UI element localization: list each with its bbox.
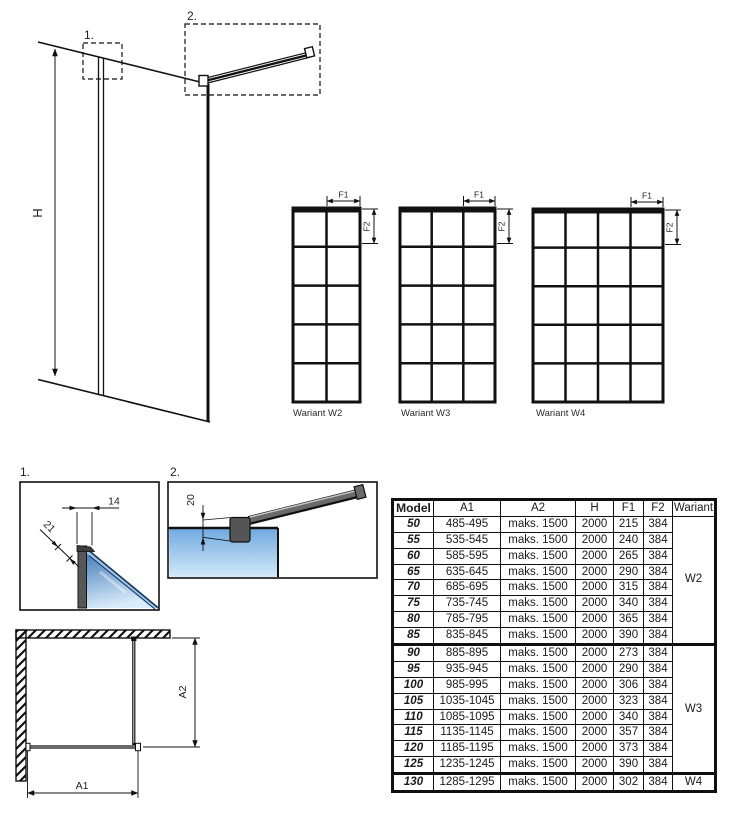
cell-a2: maks. 1500 <box>501 757 576 774</box>
cell-model: 80 <box>393 612 434 628</box>
cell-h: 2000 <box>576 661 614 677</box>
col-header-f2: F2 <box>644 500 673 517</box>
table-row: 100985-995maks. 15002000306384 <box>393 677 716 693</box>
dim-20-label: 20 <box>185 494 197 506</box>
cell-f1: 273 <box>614 645 644 662</box>
cell-model: 75 <box>393 596 434 612</box>
f2-label: F2 <box>497 221 507 231</box>
cell-a2: maks. 1500 <box>501 774 576 792</box>
col-header-f1: F1 <box>614 500 644 517</box>
cell-f2: 384 <box>644 596 673 612</box>
table-row: 1301285-1295maks. 15002000302384W4 <box>393 774 716 792</box>
cell-a2: maks. 1500 <box>501 661 576 677</box>
cell-h: 2000 <box>576 596 614 612</box>
cell-a1: 535-545 <box>434 532 501 548</box>
f1-dimension-w3: F1 <box>464 190 496 207</box>
variant-w3-label: Wariant W3 <box>401 408 450 419</box>
f2-label: F2 <box>665 222 675 232</box>
table-row: 1201185-1195maks. 15002000373384 <box>393 741 716 757</box>
cell-model: 125 <box>393 757 434 774</box>
col-header-a1: A1 <box>434 500 501 517</box>
cell-model: 60 <box>393 548 434 564</box>
table-row: 1101085-1095maks. 15002000340384 <box>393 709 716 725</box>
cell-f2: 384 <box>644 612 673 628</box>
a2-label: A2 <box>177 685 189 698</box>
cell-model: 105 <box>393 693 434 709</box>
cell-a2: maks. 1500 <box>501 532 576 548</box>
cell-h: 2000 <box>576 612 614 628</box>
cell-f1: 390 <box>614 628 644 645</box>
cell-a2: maks. 1500 <box>501 677 576 693</box>
f1-dimension-w2: F1 <box>327 190 360 207</box>
left-wall <box>16 630 26 781</box>
cell-a1: 985-995 <box>434 677 501 693</box>
cell-f1: 240 <box>614 532 644 548</box>
cell-h: 2000 <box>576 548 614 564</box>
cell-model: 65 <box>393 564 434 580</box>
cell-h: 2000 <box>576 725 614 741</box>
col-header-h: H <box>576 500 614 517</box>
cell-model: 115 <box>393 725 434 741</box>
col-header-wariant: Wariant <box>673 500 716 517</box>
detail-1-label: 1. <box>20 465 30 479</box>
f1-label: F1 <box>642 191 652 201</box>
cell-f1: 390 <box>614 757 644 774</box>
bar-wall-cap <box>305 47 315 58</box>
plan-view-drawing: A1 A2 <box>10 620 222 839</box>
detail-2-drawing: 2. 20 <box>165 460 380 585</box>
cell-f2: 384 <box>644 709 673 725</box>
dim-21: 21 <box>40 519 79 567</box>
col-header-model: Model <box>393 500 434 517</box>
cell-a1: 1135-1145 <box>434 725 501 741</box>
cell-a2: maks. 1500 <box>501 564 576 580</box>
cell-a2: maks. 1500 <box>501 580 576 596</box>
cell-f2: 384 <box>644 774 673 792</box>
cell-f2: 384 <box>644 757 673 774</box>
cell-f1: 215 <box>614 516 644 532</box>
table-row: 75735-745maks. 15002000340384 <box>393 596 716 612</box>
wall-profile <box>99 57 104 396</box>
cell-f1: 357 <box>614 725 644 741</box>
table-row: 90885-895maks. 15002000273384W3 <box>393 645 716 662</box>
support-bar <box>199 47 315 86</box>
spec-table-body: 50485-495maks. 15002000215384W255535-545… <box>393 516 716 791</box>
clamp-block <box>230 518 250 543</box>
f1-label: F1 <box>339 190 349 200</box>
cell-a1: 1185-1195 <box>434 741 501 757</box>
cell-f2: 384 <box>644 516 673 532</box>
a2-dimension: A2 <box>143 638 200 747</box>
detail-callout-1: 1. <box>83 28 122 79</box>
cell-model: 130 <box>393 774 434 792</box>
cell-h: 2000 <box>576 741 614 757</box>
variant-w3: F1 F2 Wariant W3 <box>399 190 514 420</box>
cell-a1: 885-895 <box>434 645 501 662</box>
table-row: 70685-695maks. 15002000315384 <box>393 580 716 596</box>
f2-dimension-w2: F2 <box>362 209 379 244</box>
detail-1-drawing: 1. 14 21 <box>10 460 170 620</box>
cell-f1: 302 <box>614 774 644 792</box>
cell-model: 90 <box>393 645 434 662</box>
cell-h: 2000 <box>576 677 614 693</box>
page: { "perspective": { "h_label": "H", "deta… <box>0 0 735 839</box>
top-wall <box>16 630 170 638</box>
cell-f2: 384 <box>644 725 673 741</box>
cell-model: 95 <box>393 661 434 677</box>
h-dimension: H <box>30 49 55 376</box>
table-row: 1251235-1245maks. 15002000390384 <box>393 757 716 774</box>
cell-a2: maks. 1500 <box>501 725 576 741</box>
cell-model: 50 <box>393 516 434 532</box>
cell-a1: 485-495 <box>434 516 501 532</box>
cell-model: 120 <box>393 741 434 757</box>
cell-h: 2000 <box>576 532 614 548</box>
cell-h: 2000 <box>576 516 614 532</box>
cell-f2: 384 <box>644 741 673 757</box>
cell-model: 70 <box>393 580 434 596</box>
cell-h: 2000 <box>576 564 614 580</box>
cell-a1: 1285-1295 <box>434 774 501 792</box>
cell-f2: 384 <box>644 628 673 645</box>
cell-f1: 265 <box>614 548 644 564</box>
bar-glass-clamp <box>199 76 208 87</box>
cell-a1: 1035-1045 <box>434 693 501 709</box>
cell-a2: maks. 1500 <box>501 548 576 564</box>
cell-h: 2000 <box>576 757 614 774</box>
cell-f1: 340 <box>614 596 644 612</box>
cell-f2: 384 <box>644 532 673 548</box>
cell-wariant: W3 <box>673 645 716 774</box>
cell-a1: 785-795 <box>434 612 501 628</box>
variant-w4: F1 F2 Wariant W4 <box>532 191 682 420</box>
spec-table: Model A1 A2 H F1 F2 Wariant 50485-495mak… <box>391 498 717 793</box>
table-row: 95935-945maks. 15002000290384 <box>393 661 716 677</box>
table-header-row: Model A1 A2 H F1 F2 Wariant <box>393 500 716 517</box>
variant-grids: F1 F2 Wariant W2 F1 F2 War <box>280 185 735 430</box>
detail-callout-1-label: 1. <box>84 28 94 42</box>
cell-a2: maks. 1500 <box>501 645 576 662</box>
cell-a2: maks. 1500 <box>501 596 576 612</box>
cell-a1: 735-745 <box>434 596 501 612</box>
table-row: 50485-495maks. 15002000215384W2 <box>393 516 716 532</box>
cell-f1: 290 <box>614 564 644 580</box>
bar-clamp-section <box>230 485 366 542</box>
cell-f2: 384 <box>644 645 673 662</box>
cell-f1: 365 <box>614 612 644 628</box>
cell-f1: 340 <box>614 709 644 725</box>
detail-2-label: 2. <box>170 465 180 479</box>
cell-a1: 1235-1245 <box>434 757 501 774</box>
a1-dimension: A1 <box>28 751 139 798</box>
variant-w4-label: Wariant W4 <box>536 408 585 419</box>
cell-model: 85 <box>393 628 434 645</box>
h-dimension-label: H <box>30 208 45 217</box>
cell-f1: 306 <box>614 677 644 693</box>
cell-a1: 935-945 <box>434 661 501 677</box>
cell-a2: maks. 1500 <box>501 693 576 709</box>
f1-label: F1 <box>474 190 484 200</box>
walls <box>16 630 170 781</box>
variant-w2-label: Wariant W2 <box>293 408 342 419</box>
f1-dimension-w4: F1 <box>631 191 663 208</box>
cell-f1: 315 <box>614 580 644 596</box>
cell-a1: 1085-1095 <box>434 709 501 725</box>
cell-wariant: W4 <box>673 774 716 792</box>
cell-model: 100 <box>393 677 434 693</box>
cell-h: 2000 <box>576 774 614 792</box>
f2-label: F2 <box>362 221 372 231</box>
support-bar-plan <box>131 637 136 746</box>
cell-a2: maks. 1500 <box>501 612 576 628</box>
a1-label: A1 <box>76 780 89 792</box>
cell-f2: 384 <box>644 661 673 677</box>
glass-panel-plan <box>26 743 141 750</box>
table-row: 1051035-1045maks. 15002000323384 <box>393 693 716 709</box>
cell-a1: 585-595 <box>434 548 501 564</box>
cell-h: 2000 <box>576 628 614 645</box>
cell-f2: 384 <box>644 564 673 580</box>
table-row: 85835-845maks. 15002000390384 <box>393 628 716 645</box>
cell-h: 2000 <box>576 709 614 725</box>
variant-w2: F1 F2 Wariant W2 <box>292 190 379 420</box>
dim-14-label: 14 <box>108 496 120 508</box>
cell-f2: 384 <box>644 677 673 693</box>
cell-f1: 323 <box>614 693 644 709</box>
cell-a1: 685-695 <box>434 580 501 596</box>
table-row: 55535-545maks. 15002000240384 <box>393 532 716 548</box>
cell-a1: 635-645 <box>434 564 501 580</box>
col-header-a2: A2 <box>501 500 576 517</box>
cell-a2: maks. 1500 <box>501 628 576 645</box>
table-row: 65635-645maks. 15002000290384 <box>393 564 716 580</box>
cell-f1: 290 <box>614 661 644 677</box>
cell-model: 110 <box>393 709 434 725</box>
dim-14: 14 <box>62 496 120 546</box>
glass-panel-outline <box>38 42 210 422</box>
glass-edge-section <box>87 549 159 610</box>
f2-dimension-w4: F2 <box>665 210 682 245</box>
cell-a2: maks. 1500 <box>501 516 576 532</box>
cell-a2: maks. 1500 <box>501 741 576 757</box>
cell-f2: 384 <box>644 693 673 709</box>
cell-wariant: W2 <box>673 516 716 644</box>
cell-a1: 835-845 <box>434 628 501 645</box>
cell-f2: 384 <box>644 548 673 564</box>
cell-a2: maks. 1500 <box>501 709 576 725</box>
table-row: 1151135-1145maks. 15002000357384 <box>393 725 716 741</box>
cell-f1: 373 <box>614 741 644 757</box>
table-row: 60585-595maks. 15002000265384 <box>393 548 716 564</box>
cell-model: 55 <box>393 532 434 548</box>
cell-h: 2000 <box>576 645 614 662</box>
f2-dimension-w3: F2 <box>497 209 514 244</box>
cell-f2: 384 <box>644 580 673 596</box>
glass-top-section <box>168 528 278 577</box>
cell-h: 2000 <box>576 580 614 596</box>
detail-callout-2-label: 2. <box>187 9 197 23</box>
cell-h: 2000 <box>576 693 614 709</box>
table-row: 80785-795maks. 15002000365384 <box>393 612 716 628</box>
